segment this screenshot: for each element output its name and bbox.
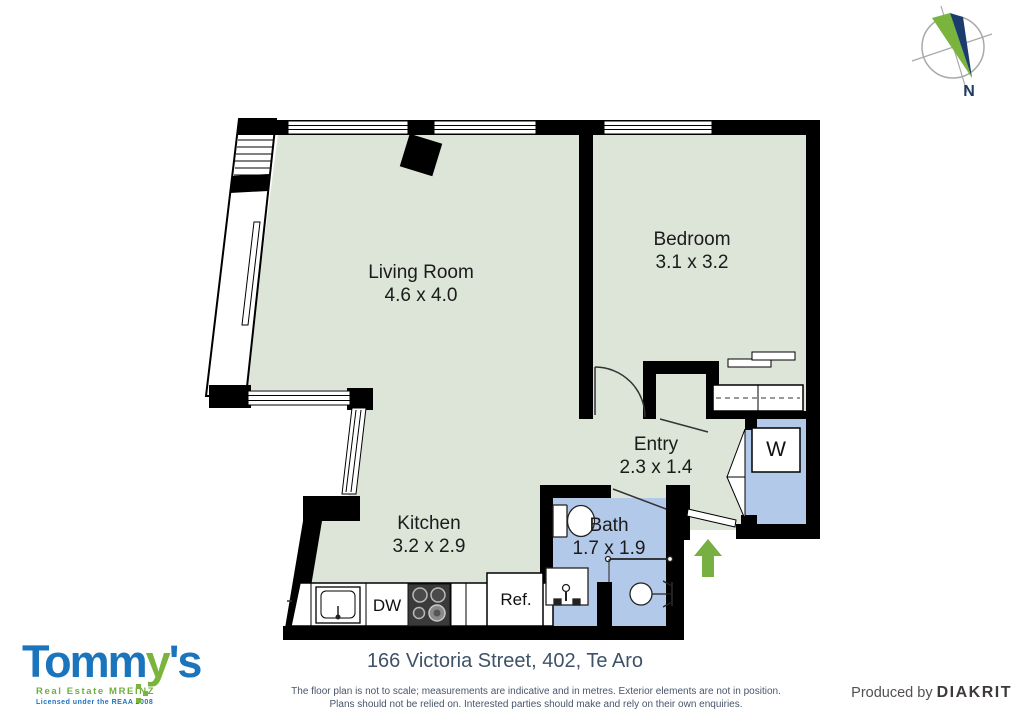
sink-icon: [316, 587, 360, 623]
refrigerator-label: Ref.: [500, 590, 531, 610]
agency-tagline: Real Estate MREINZ: [36, 686, 222, 697]
room-dims: 2.3 x 1.4: [620, 456, 693, 479]
room-name: Bedroom: [653, 228, 730, 251]
agency-logo: Tommy's Real Estate MREINZ Licensed unde…: [22, 640, 222, 706]
room-name: Kitchen: [393, 512, 466, 535]
floorplan-page: Living Room 4.6 x 4.0 Bedroom 3.1 x 3.2 …: [0, 0, 1024, 724]
logo-text-blue: Tomm: [22, 636, 146, 687]
room-dims: 3.1 x 3.2: [653, 251, 730, 274]
wall-block: [230, 174, 269, 193]
room-dims: 3.2 x 2.9: [393, 535, 466, 558]
agency-logo-wordmark: Tommy's: [22, 640, 222, 684]
sliding-door-panel: [752, 352, 795, 360]
logo-pixel-square: [136, 698, 141, 703]
entry-arrow-icon: [694, 539, 722, 577]
room-dims: 1.7 x 1.9: [573, 537, 646, 560]
compass-icon: [912, 6, 992, 92]
stove-icon: [408, 584, 450, 626]
produced-by-text: Produced by: [851, 685, 936, 701]
agency-license: Licensed under the REAA 2008: [36, 699, 222, 706]
produced-by: Produced by DIAKRIT: [851, 684, 1012, 702]
room-dims: 4.6 x 4.0: [368, 284, 474, 307]
room-label-kitchen: Kitchen 3.2 x 2.9: [393, 512, 466, 558]
vanity-icon: [546, 568, 588, 605]
room-name: Bath: [573, 514, 646, 537]
room-name: Living Room: [368, 261, 474, 284]
producer-name: DIAKRIT: [937, 684, 1012, 701]
floorplan-svg: [0, 0, 1024, 724]
washer-label: W: [766, 438, 786, 462]
logo-text-blue-2: 's: [169, 636, 201, 687]
logo-pixel-square: [143, 691, 148, 696]
room-name: Entry: [620, 433, 693, 456]
room-label-entry: Entry 2.3 x 1.4: [620, 433, 693, 479]
logo-text-green: y: [146, 636, 169, 687]
compass-north-label: N: [963, 83, 975, 101]
room-label-bath: Bath 1.7 x 1.9: [573, 514, 646, 560]
logo-pixel-square: [136, 684, 141, 689]
dishwasher-label: DW: [373, 596, 401, 616]
room-label-bedroom: Bedroom 3.1 x 3.2: [653, 228, 730, 274]
room-label-living: Living Room 4.6 x 4.0: [368, 261, 474, 307]
